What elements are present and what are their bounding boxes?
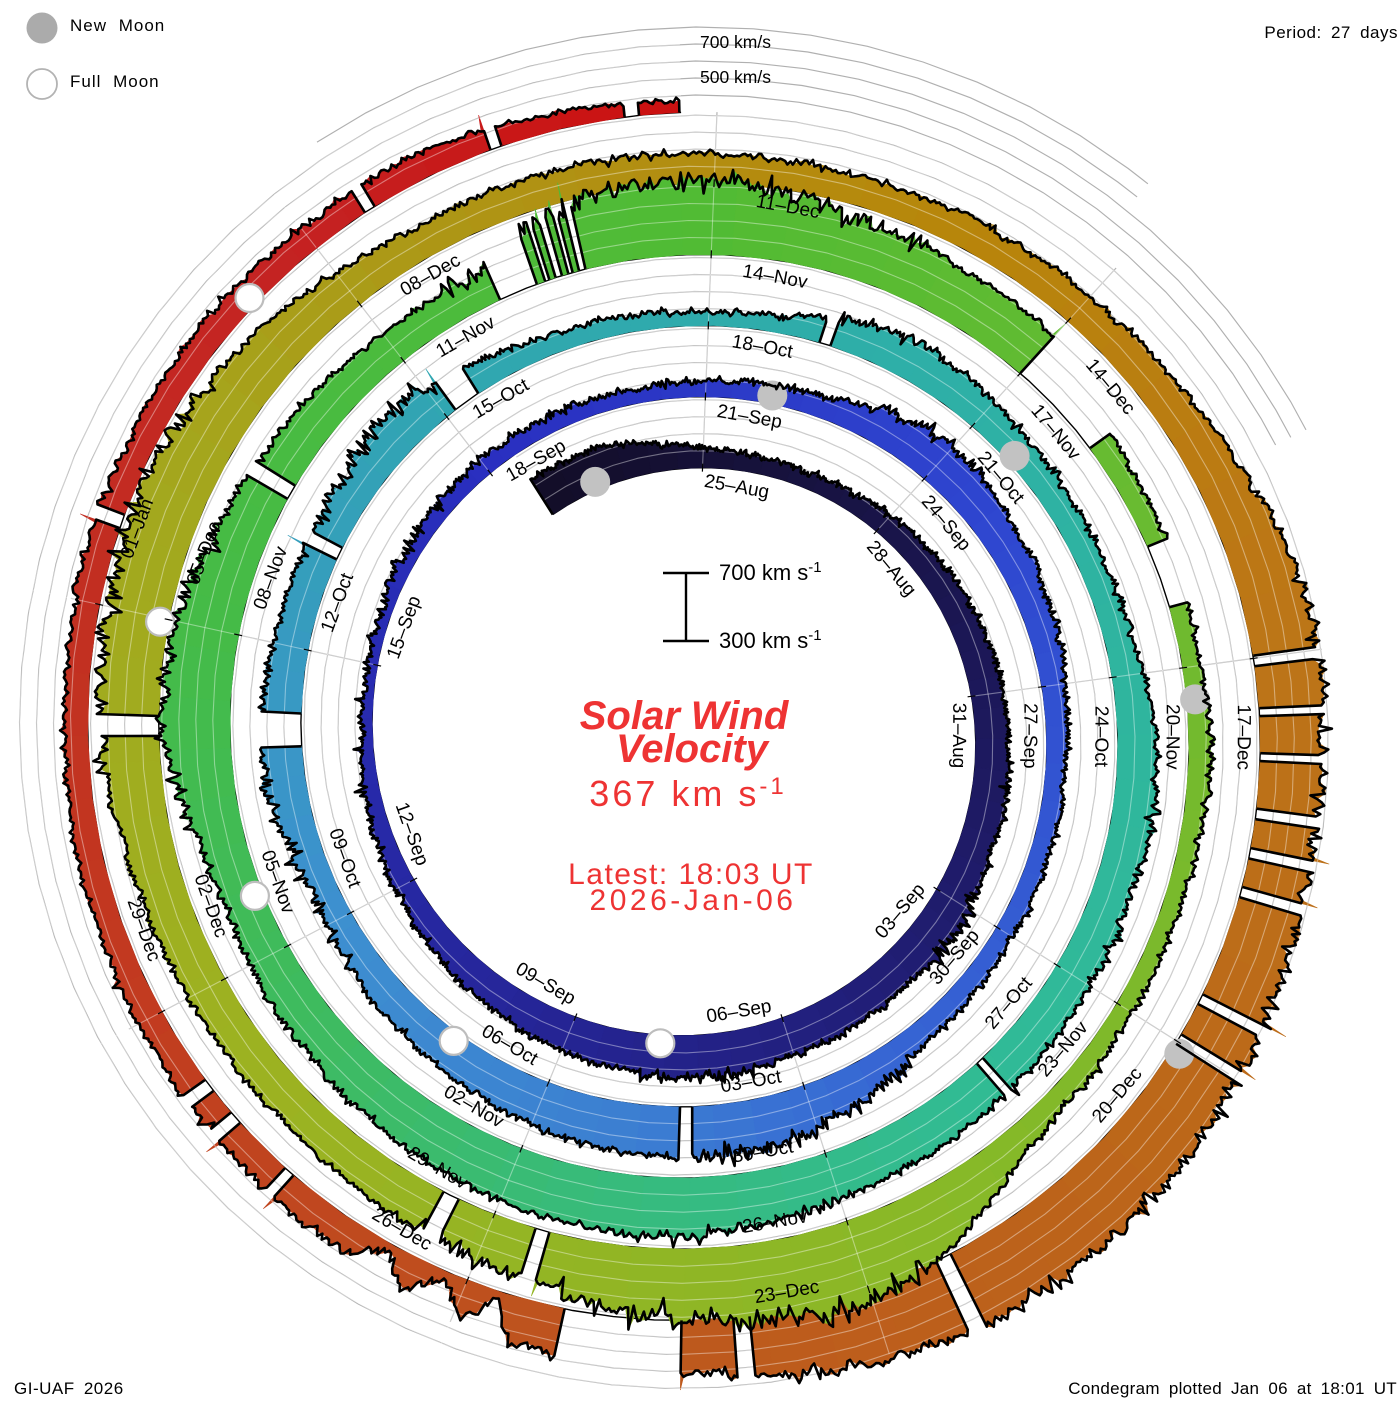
svg-text:700 km s-1: 700 km s-1 [719, 559, 822, 585]
svg-text:New Moon: New Moon [70, 16, 165, 35]
svg-text:17–Dec: 17–Dec [1233, 704, 1254, 770]
svg-text:700 km/s: 700 km/s [700, 32, 771, 52]
svg-text:27–Sep: 27–Sep [1019, 703, 1040, 769]
svg-text:367 km s-1: 367 km s-1 [589, 773, 786, 814]
svg-text:Velocity: Velocity [616, 727, 770, 771]
svg-text:Full Moon: Full Moon [70, 72, 160, 91]
svg-text:300 km s-1: 300 km s-1 [719, 627, 822, 653]
svg-text:20–Nov: 20–Nov [1161, 704, 1182, 770]
svg-text:2026-Jan-06: 2026-Jan-06 [590, 884, 797, 917]
svg-text:31–Aug: 31–Aug [948, 703, 969, 769]
svg-text:24–Oct: 24–Oct [1090, 706, 1111, 768]
svg-text:Period: 27 days: Period: 27 days [1264, 23, 1398, 42]
svg-text:500 km/s: 500 km/s [700, 67, 771, 87]
svg-text:Condegram plotted Jan 06 at 18: Condegram plotted Jan 06 at 18:01 UT [1068, 1379, 1397, 1398]
svg-text:GI-UAF 2026: GI-UAF 2026 [14, 1379, 124, 1398]
